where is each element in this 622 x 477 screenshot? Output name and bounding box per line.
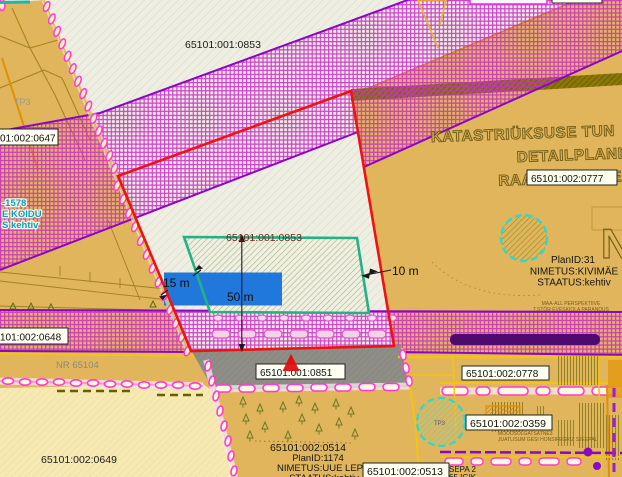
svg-text:STAATUS:kehtiv: STAATUS:kehtiv <box>289 473 359 477</box>
svg-text:NR 65104: NR 65104 <box>56 360 99 371</box>
svg-text:JUATLISUM GESI HONSIFEGRIZ SJE: JUATLISUM GESI HONSIFEGRIZ SJEEPAL <box>498 437 597 443</box>
svg-text:101:002:0648: 101:002:0648 <box>0 333 62 344</box>
svg-text:65101:002:0513: 65101:002:0513 <box>367 466 443 477</box>
svg-text:-1578: -1578 <box>2 198 26 209</box>
svg-text:65101:001:0853: 65101:001:0853 <box>226 232 302 244</box>
svg-text:TP3: TP3 <box>434 421 446 427</box>
svg-text:NIMETUS:KIVIMÄE: NIMETUS:KIVIMÄE <box>530 266 619 278</box>
svg-text:65101:002:0359: 65101:002:0359 <box>470 418 546 430</box>
svg-text:N: N <box>601 220 622 267</box>
svg-text:15 m: 15 m <box>163 276 190 290</box>
svg-text:65101:002:0778: 65101:002:0778 <box>466 369 539 380</box>
svg-text:E KOIDU: E KOIDU <box>2 209 42 220</box>
svg-text:STAATUS:kehtiv: STAATUS:kehtiv <box>537 278 611 289</box>
svg-text:65101:001:0853: 65101:001:0853 <box>185 39 261 51</box>
svg-text:TP3: TP3 <box>14 97 31 107</box>
svg-text:S kehtiv: S kehtiv <box>2 220 39 231</box>
svg-text:50 m: 50 m <box>227 290 254 304</box>
svg-text:PlanID:31: PlanID:31 <box>551 255 595 266</box>
svg-text:DETAILPLANEE: DETAILPLANEE <box>516 145 622 166</box>
svg-text:01:002:0647: 01:002:0647 <box>0 134 56 145</box>
svg-text:65101:002:0649: 65101:002:0649 <box>41 454 117 466</box>
svg-text:T.STÖR EVESKIOLA PARANDUS: T.STÖR EVESKIOLA PARANDUS <box>533 306 609 313</box>
svg-text:10 m: 10 m <box>392 264 419 278</box>
svg-text:65 IGIK: 65 IGIK <box>449 473 477 477</box>
svg-text:65101:002:0777: 65101:002:0777 <box>531 174 604 185</box>
